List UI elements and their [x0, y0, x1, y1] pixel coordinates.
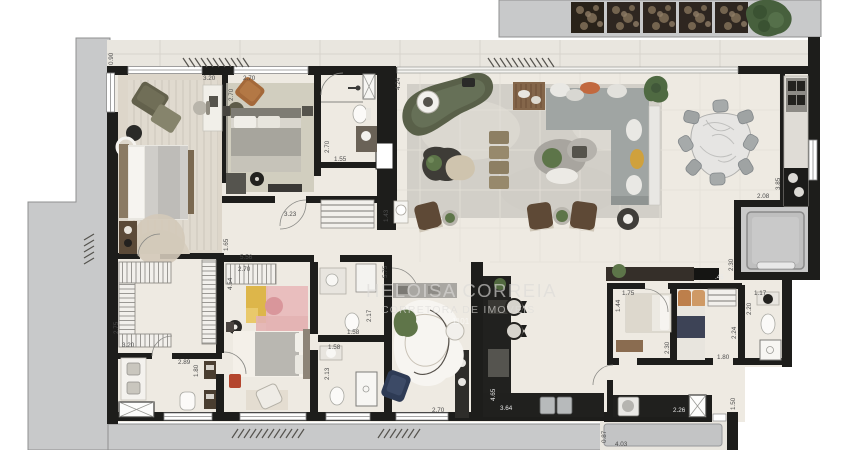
svg-text:1.58: 1.58 [347, 329, 360, 336]
svg-text:1.58: 1.58 [328, 344, 341, 351]
svg-text:2.26: 2.26 [673, 407, 686, 414]
svg-text:3.85: 3.85 [775, 177, 782, 190]
svg-text:2.20: 2.20 [746, 302, 753, 315]
svg-text:1.50: 1.50 [730, 397, 737, 410]
svg-text:4.24: 4.24 [395, 77, 402, 90]
svg-text:4.54: 4.54 [227, 277, 234, 290]
svg-text:CORRETORA DE IMOVEIS: CORRETORA DE IMOVEIS [381, 304, 536, 316]
svg-text:2.70: 2.70 [324, 140, 331, 153]
svg-text:2.08: 2.08 [757, 193, 770, 200]
svg-text:4.65: 4.65 [490, 388, 497, 401]
svg-text:2.70: 2.70 [238, 266, 251, 273]
svg-text:HELOISA CORREIA: HELOISA CORREIA [366, 280, 557, 301]
svg-text:0.87: 0.87 [601, 430, 608, 443]
svg-text:1.65: 1.65 [223, 238, 230, 251]
svg-text:2.17: 2.17 [366, 309, 373, 322]
svg-text:2.30: 2.30 [728, 258, 735, 271]
svg-text:1.17: 1.17 [754, 290, 767, 297]
svg-text:3.20: 3.20 [203, 75, 216, 82]
svg-text:1.44: 1.44 [615, 299, 622, 312]
svg-text:4.03: 4.03 [615, 441, 628, 448]
svg-text:2.24: 2.24 [731, 326, 738, 339]
svg-text:1.80: 1.80 [717, 354, 730, 361]
svg-text:0.90: 0.90 [108, 52, 115, 65]
svg-text:1.55: 1.55 [334, 156, 347, 163]
svg-text:2.70: 2.70 [228, 88, 235, 101]
svg-text:.45: .45 [715, 274, 724, 281]
svg-text:2.75: 2.75 [113, 321, 120, 334]
svg-text:2.70: 2.70 [243, 75, 256, 82]
svg-text:1.75: 1.75 [622, 290, 635, 297]
svg-text:1101: 1101 [452, 317, 470, 326]
svg-text:1.43: 1.43 [383, 209, 390, 222]
svg-text:1.80: 1.80 [193, 364, 200, 377]
svg-text:3.20: 3.20 [122, 342, 135, 349]
svg-text:2.13: 2.13 [324, 367, 331, 380]
svg-text:2.70: 2.70 [432, 407, 445, 414]
svg-text:5.56: 5.56 [240, 254, 253, 261]
svg-text:3.64: 3.64 [500, 405, 513, 412]
svg-text:2.30: 2.30 [664, 341, 671, 354]
svg-text:2.89: 2.89 [178, 359, 191, 366]
svg-text:3.23: 3.23 [284, 211, 297, 218]
svg-text:5.75: 5.75 [382, 265, 389, 278]
